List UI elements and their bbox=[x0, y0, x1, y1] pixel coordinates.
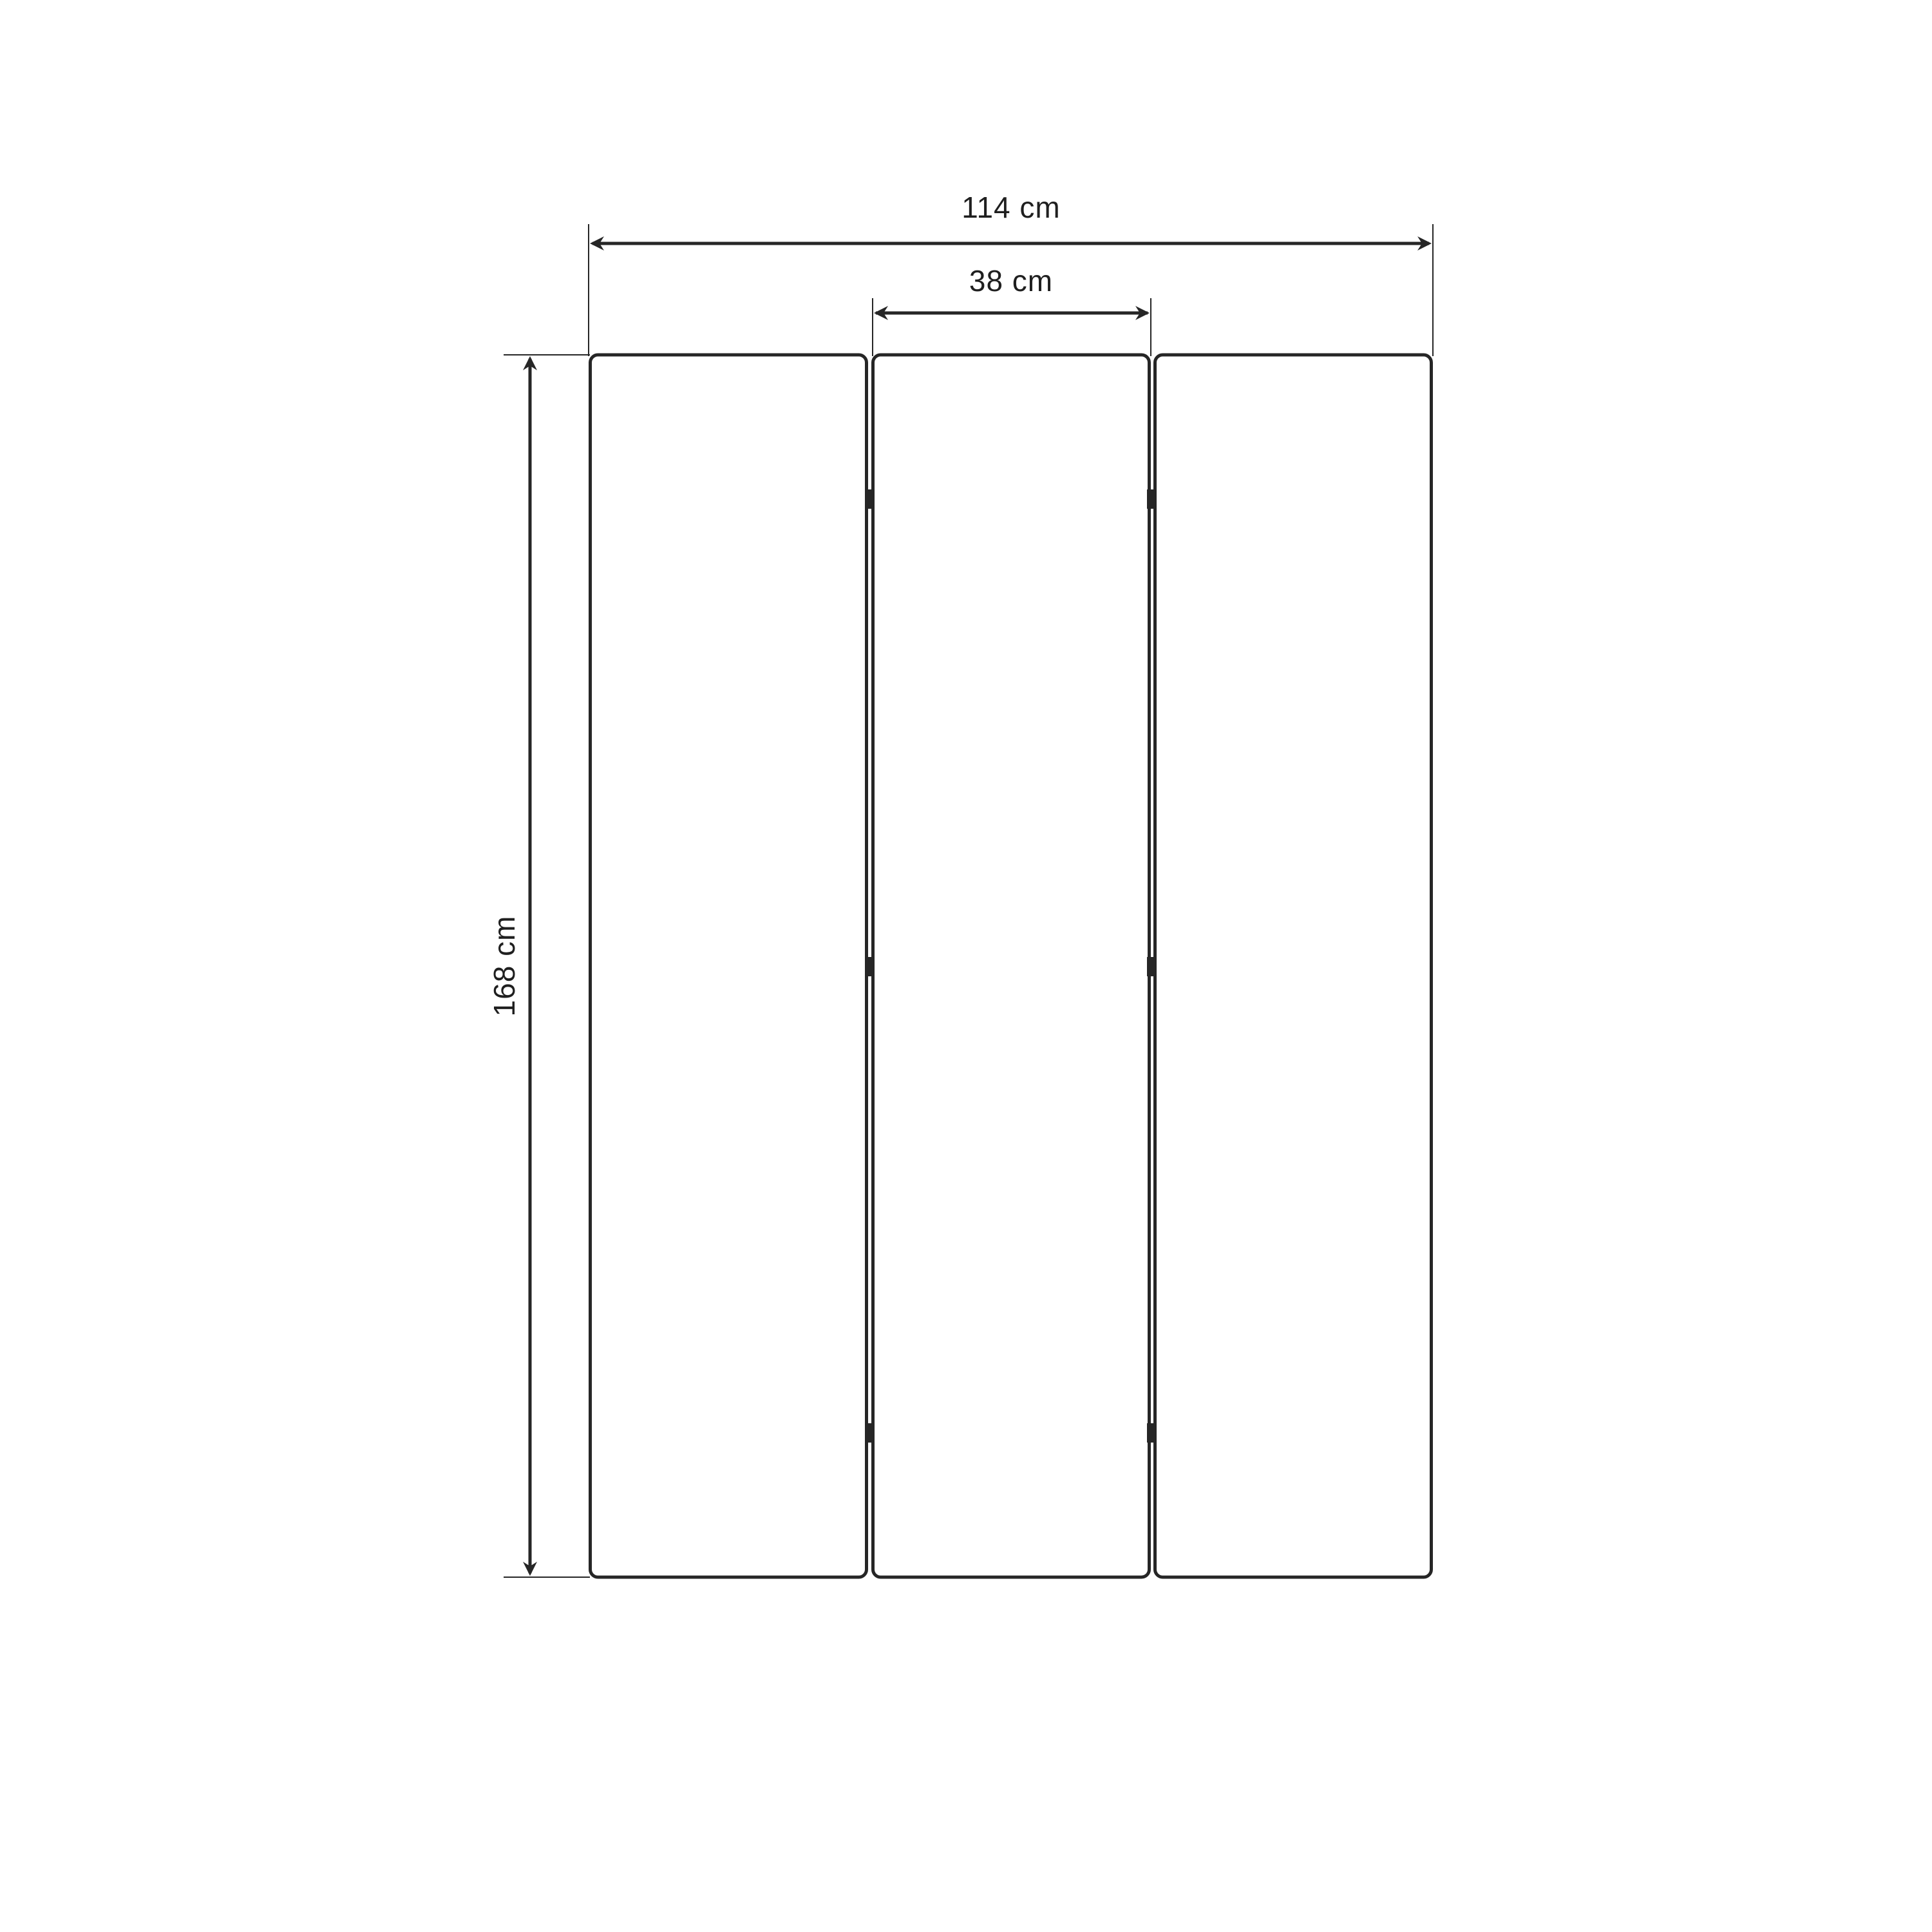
panel-middle bbox=[873, 355, 1150, 1577]
hinge-left-middle bbox=[865, 957, 875, 976]
dimension-drawing: 114 cm 38 cm 168 cm bbox=[0, 0, 1932, 1932]
total-width-label: 114 cm bbox=[961, 191, 1060, 224]
height-label: 168 cm bbox=[488, 916, 521, 1017]
hinge-right-bottom bbox=[1147, 1423, 1157, 1443]
hinge-left-top bbox=[865, 489, 875, 509]
hinge-right-middle bbox=[1147, 957, 1157, 976]
hinges bbox=[865, 489, 1157, 1443]
panel-width-label: 38 cm bbox=[969, 264, 1053, 298]
hinge-left-bottom bbox=[865, 1423, 875, 1443]
panel-width-dimension: 38 cm bbox=[873, 264, 1151, 356]
height-dimension: 168 cm bbox=[488, 355, 590, 1577]
hinge-right-top bbox=[1147, 489, 1157, 509]
drawing-canvas: 114 cm 38 cm 168 cm bbox=[0, 0, 1932, 1932]
panel-right bbox=[1155, 355, 1432, 1577]
panel-left bbox=[591, 355, 867, 1577]
panels bbox=[591, 355, 1432, 1577]
